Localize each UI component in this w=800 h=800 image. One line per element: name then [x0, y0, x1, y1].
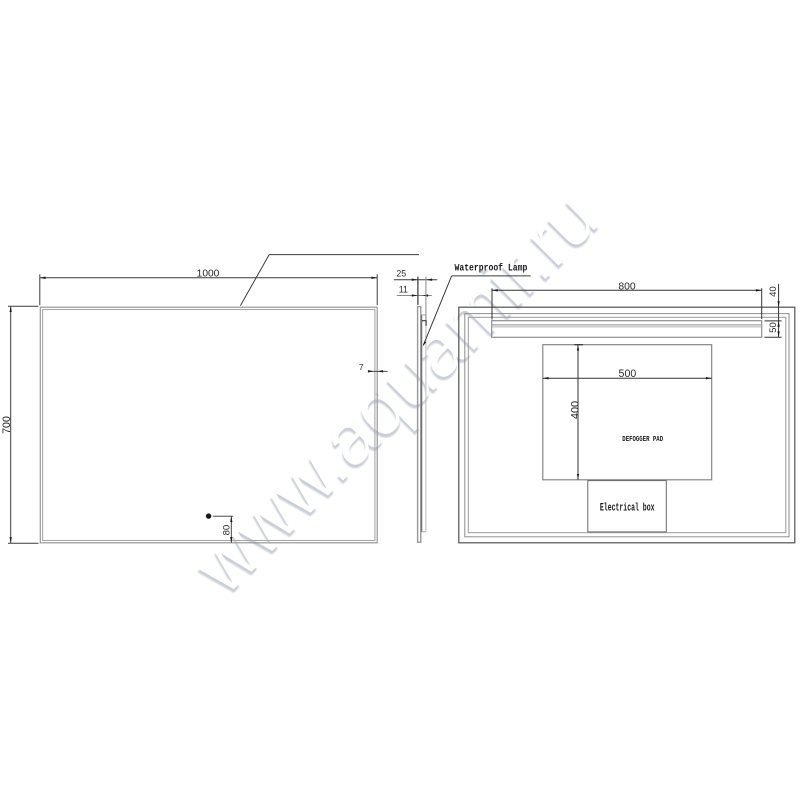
svg-text:11: 11 [399, 285, 408, 295]
svg-text:800: 800 [618, 281, 636, 292]
svg-text:50: 50 [768, 322, 779, 333]
svg-text:Waterproof Lamp: Waterproof Lamp [455, 262, 528, 274]
svg-text:DEFOGGER PAD: DEFOGGER PAD [622, 436, 663, 444]
svg-text:Electrical box: Electrical box [600, 502, 655, 514]
svg-text:40: 40 [768, 286, 779, 297]
svg-text:400: 400 [569, 401, 581, 419]
svg-text:80: 80 [222, 525, 233, 536]
svg-text:500: 500 [619, 368, 637, 380]
svg-text:7: 7 [359, 362, 364, 372]
svg-text:25: 25 [396, 268, 406, 278]
svg-text:1000: 1000 [197, 268, 220, 279]
svg-text:700: 700 [1, 416, 13, 434]
